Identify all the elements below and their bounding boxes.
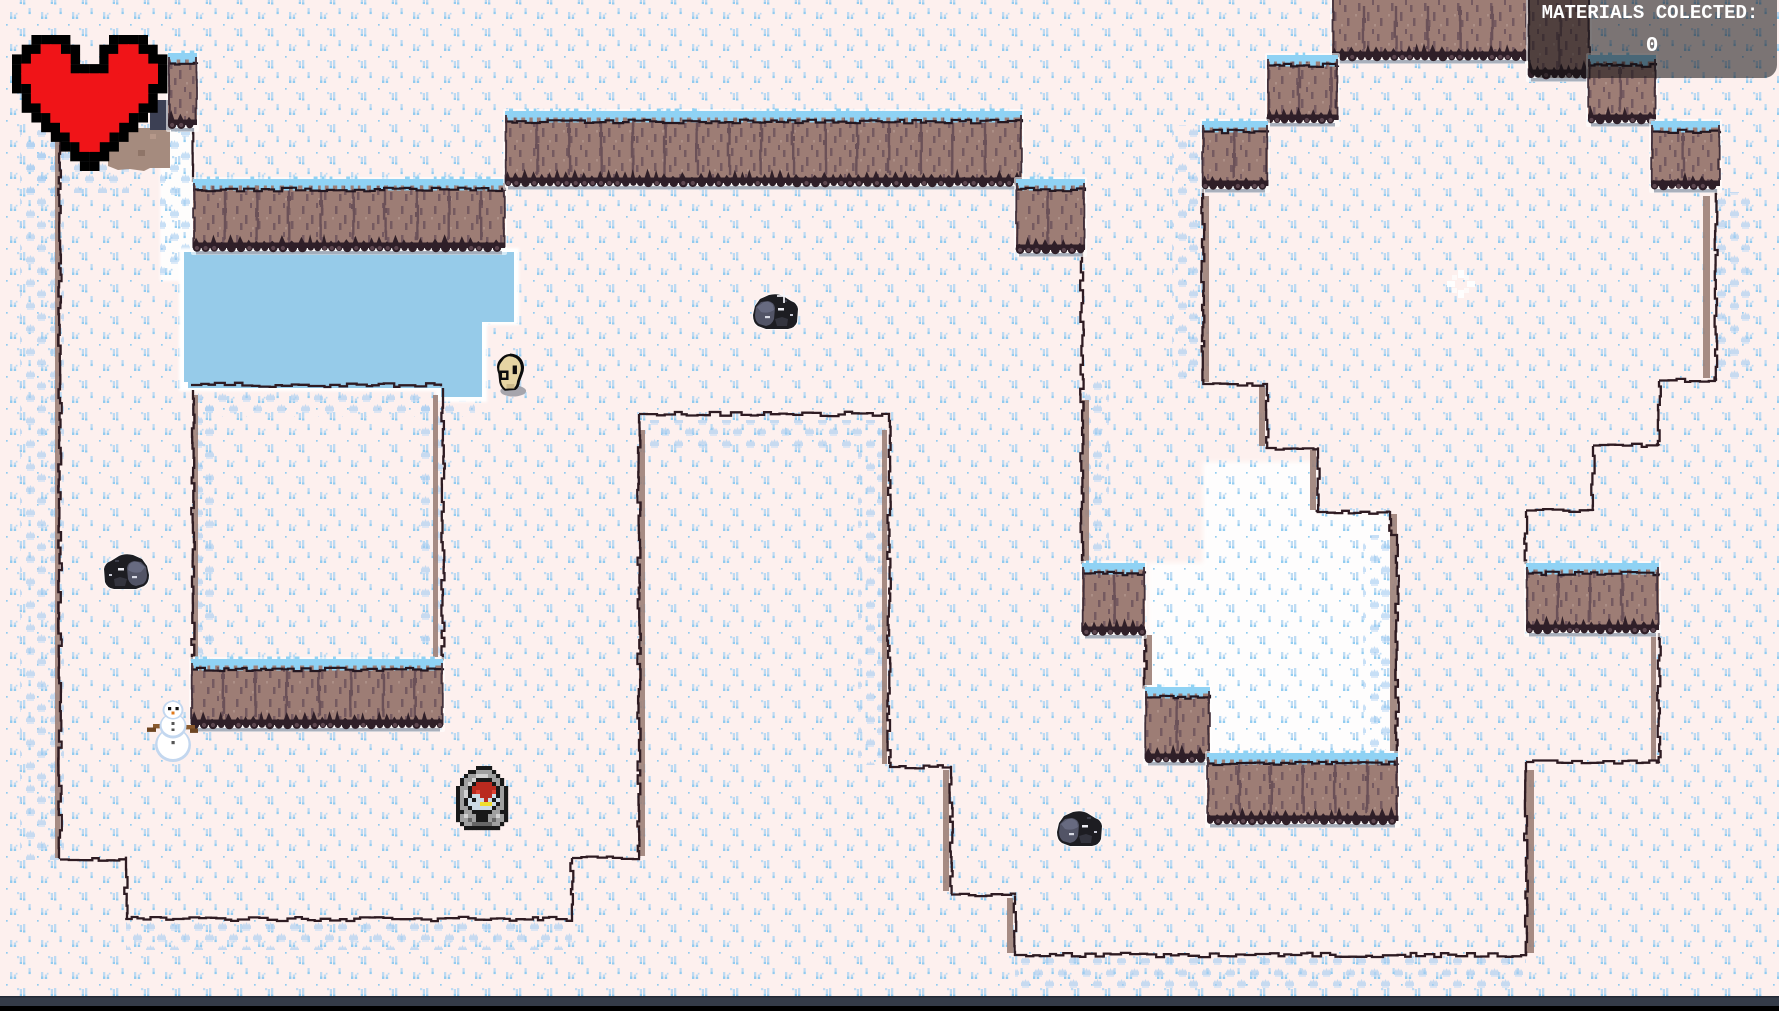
svg-text:0: 0 [1646,35,1659,58]
svg-text:MATERIALS COLECTED:: MATERIALS COLECTED: [1542,2,1759,24]
